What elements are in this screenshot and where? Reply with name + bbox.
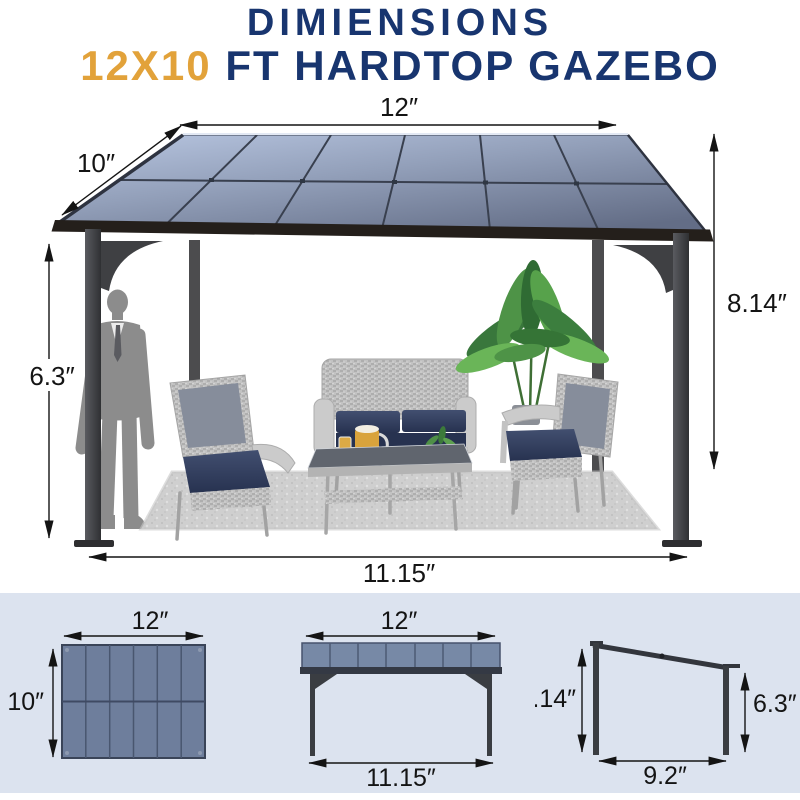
- left-corner-bracket: [101, 241, 163, 291]
- dimension-label-front-height: 6.3″: [29, 361, 74, 391]
- dimension-label-topview-width: 12″: [132, 607, 169, 635]
- roof-panel-grid: [62, 645, 205, 758]
- dimension-label-sideview-base-depth: 9.2″: [643, 762, 687, 790]
- dimension-label-sideview-total-height: 8.14″: [535, 685, 576, 713]
- title-line2: 12X10 FT HARDTOP GAZEBO: [0, 44, 800, 88]
- dimension-label-total-height: 8.14″: [727, 288, 787, 318]
- dimension-base-width: 11.15″: [89, 557, 687, 588]
- loveseat-cushion-right: [402, 410, 466, 432]
- dimension-topview-width: 12″: [64, 607, 203, 636]
- dimension-total-height: 8.14″: [714, 134, 787, 469]
- dimension-sideview-front-height: 6.3″: [745, 673, 797, 752]
- roof-top-view-diagram: 12″ 10″: [0, 593, 270, 793]
- title-size-highlight: 12X10: [80, 42, 211, 89]
- dimension-label-topview-depth: 10″: [7, 688, 44, 716]
- right-corner-bracket: [613, 245, 673, 293]
- chair-right-cushion: [506, 429, 582, 461]
- chair-left-cushion: [183, 450, 270, 493]
- dimension-roof-width: 12″: [180, 92, 616, 125]
- title-line1: DIMIENSIONS: [0, 2, 800, 44]
- dimension-front-height: 6.3″: [26, 244, 80, 538]
- gazebo-roof: [52, 134, 714, 242]
- dimension-label-roof-depth: 10″: [77, 148, 115, 178]
- dimension-label-frontview-roof-width: 12″: [381, 607, 418, 635]
- dimension-label-base-width: 11.15″: [363, 558, 435, 588]
- dimension-topview-depth: 10″: [7, 649, 53, 757]
- header-title: DIMIENSIONS 12X10 FT HARDTOP GAZEBO: [0, 0, 800, 88]
- dimension-sideview-base-depth: 9.2″: [599, 761, 726, 790]
- main-product-diagram: 12″ 10″ 6.3″ 8.14″ 11.15″: [0, 88, 800, 593]
- dimension-label-roof-width: 12″: [380, 92, 418, 122]
- title-line2-rest: FT HARDTOP GAZEBO: [212, 42, 720, 89]
- dimension-frontview-base-width: 11.15″: [309, 763, 493, 792]
- dimension-frontview-roof-width: 12″: [306, 607, 495, 636]
- front-view-diagram: 12″ 11.15″: [270, 593, 535, 793]
- dimension-label-sideview-front-height: 6.3″: [753, 690, 797, 718]
- side-view-frame: [590, 641, 740, 755]
- dimension-label-frontview-base-width: 11.15″: [366, 764, 436, 792]
- dimension-sideview-total-height: 8.14″: [535, 649, 582, 752]
- side-view-diagram: 8.14″ 6.3″ 9.2″: [535, 593, 800, 793]
- front-view-frame: [300, 643, 502, 756]
- bottom-diagram-strip: 12″ 10″: [0, 593, 800, 793]
